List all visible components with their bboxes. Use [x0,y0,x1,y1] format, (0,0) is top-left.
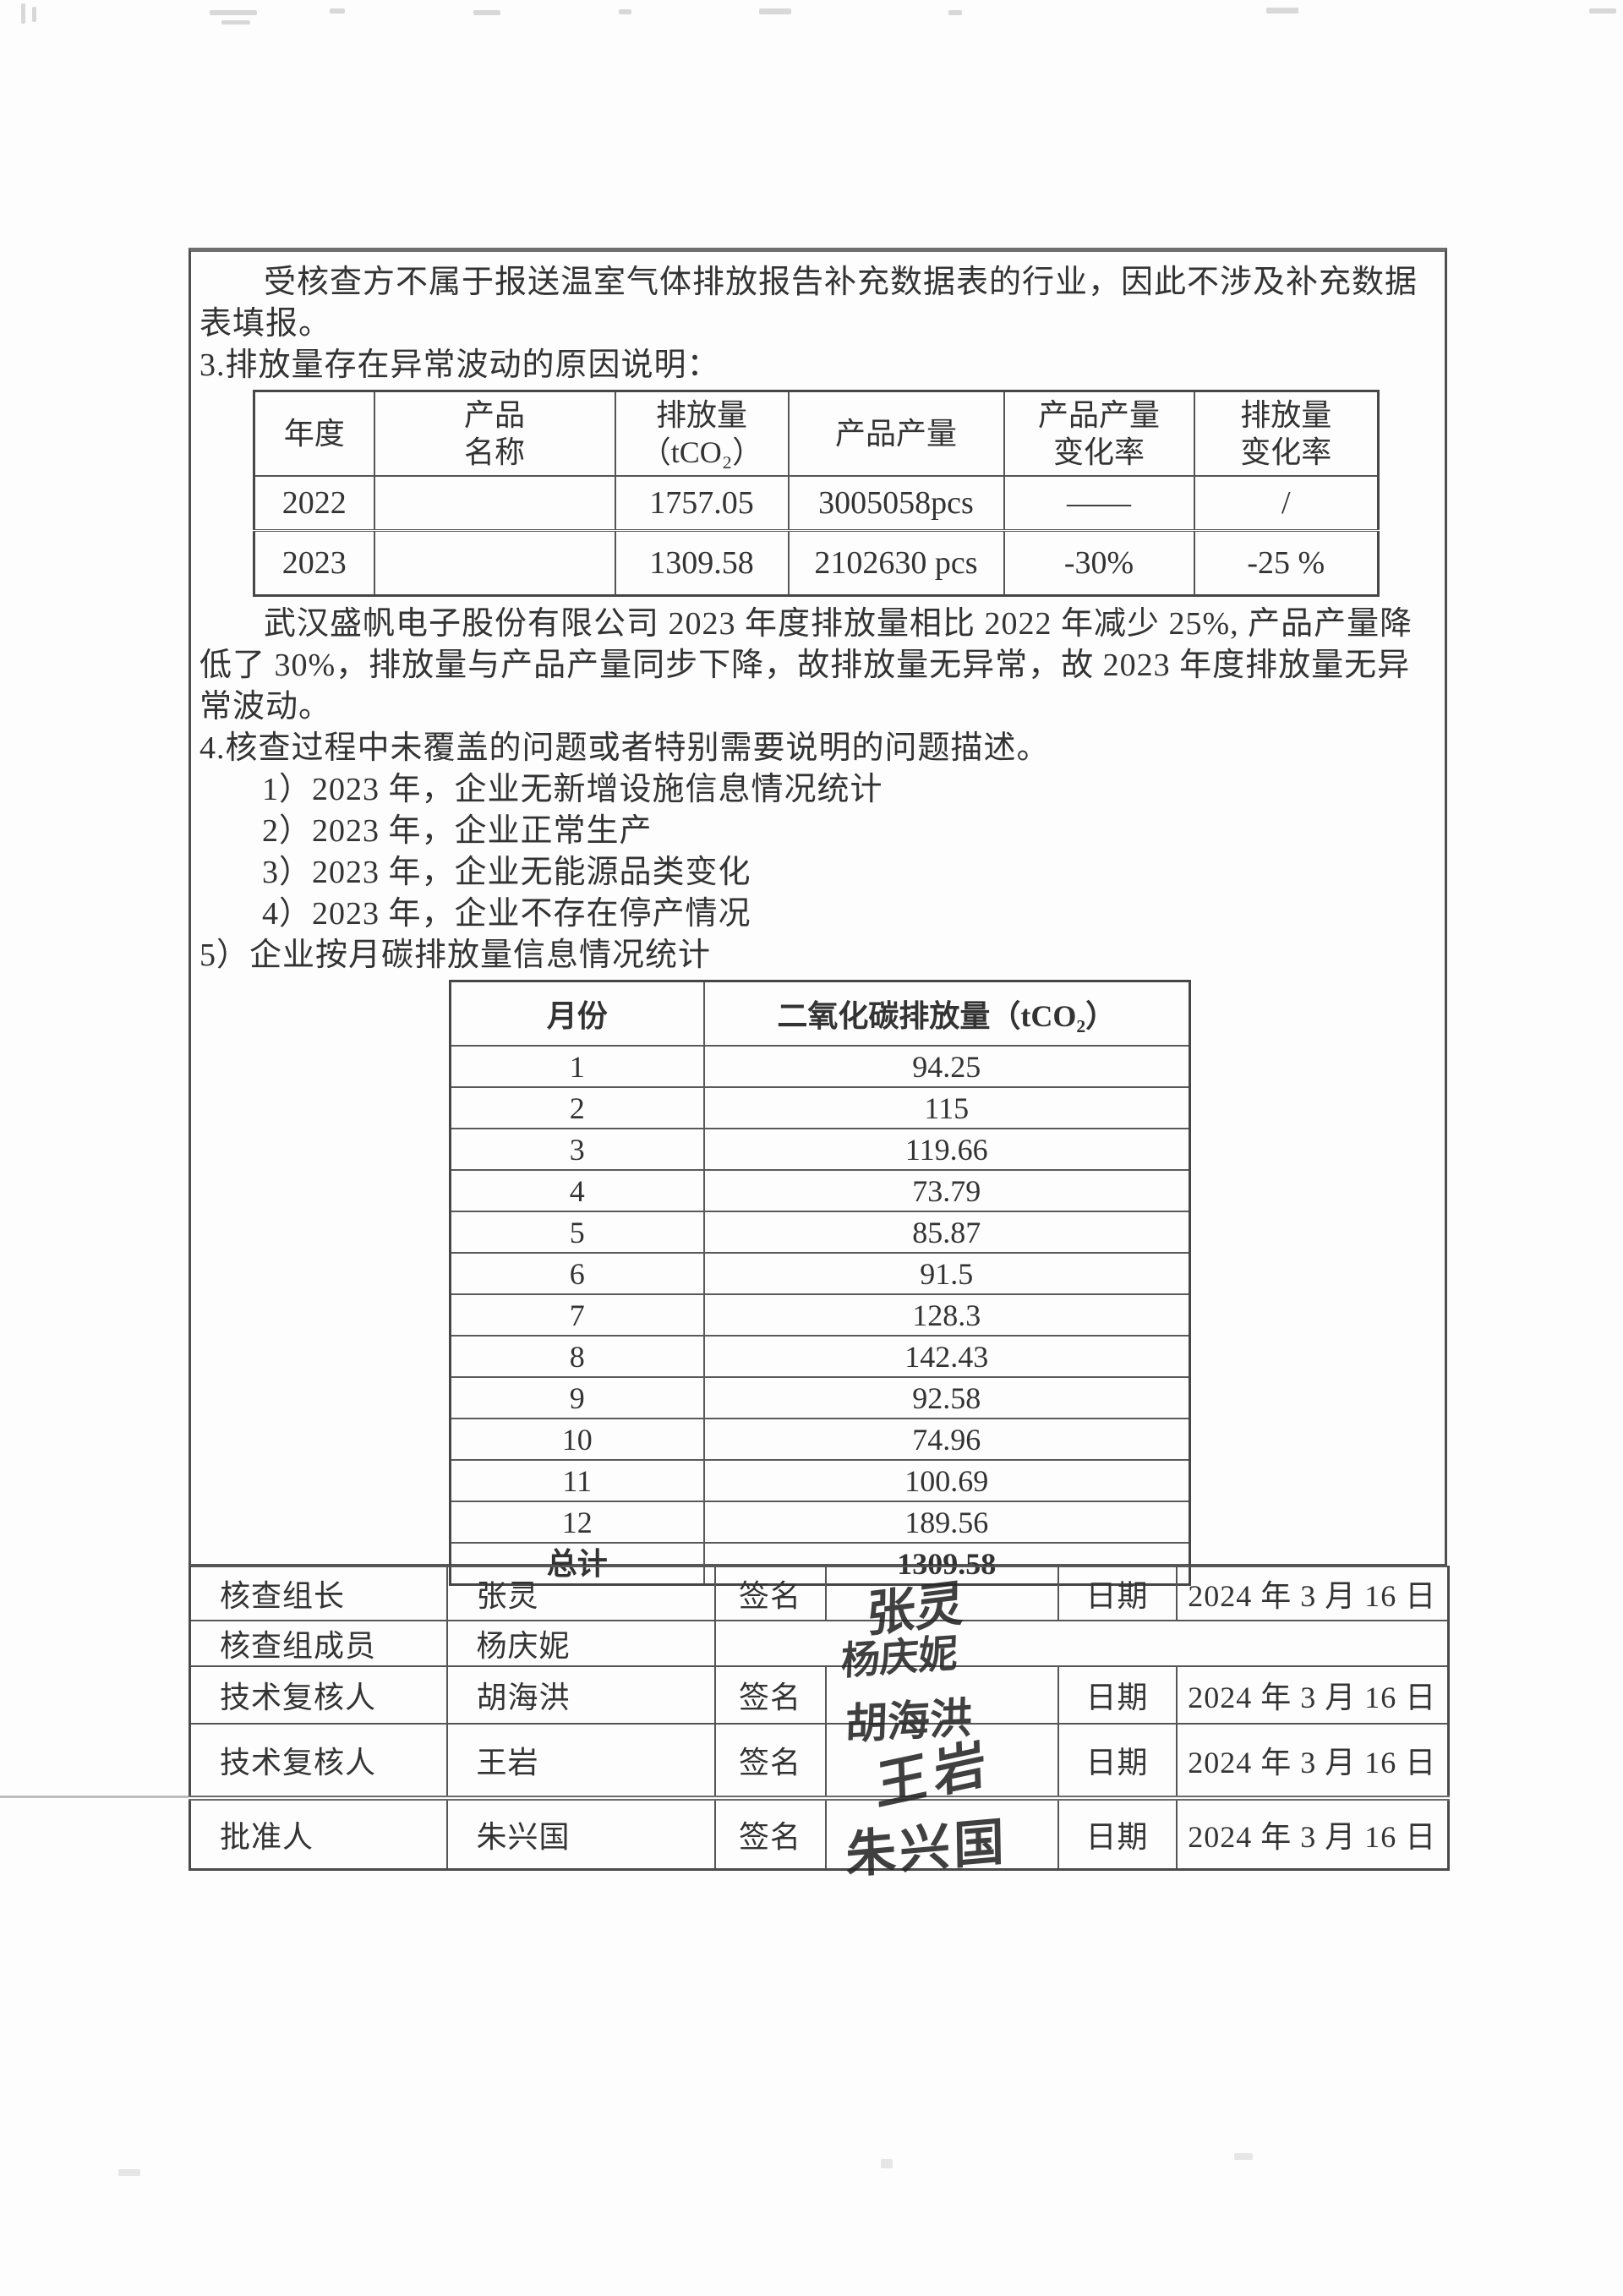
monthly-section-heading: 5）企业按月碳排放量信息情况统计 [199,935,1423,976]
date-label: 日期 [1058,1666,1177,1724]
signoff-row-tech-reviewer-1: 技术复核人 胡海洪 签名 日期 2024 年 3 月 16 日 [190,1666,1449,1724]
signoff-name: 朱兴国 [447,1798,715,1870]
signoff-role: 批准人 [190,1798,447,1870]
signoff-role: 技术复核人 [190,1666,447,1724]
table-row: 12189.56 [451,1501,1190,1543]
cell-product [374,476,615,531]
table-row: 473.79 [451,1170,1190,1211]
cell-output-change: —— [1004,476,1194,531]
col-header-year: 年度 [254,391,374,476]
scanned-report-page: { "intro": { "paragraph": "受核查方不属于报送温室气体… [0,0,1623,2296]
signoff-name: 胡海洪 [447,1666,715,1724]
signoff-name: 王岩 [447,1724,715,1798]
signoff-date: 2024 年 3 月 16 日 [1177,1798,1449,1870]
table-row: 2115 [451,1087,1190,1129]
col-header-output: 产品产量 [789,391,1004,476]
report-body-box: 受核查方不属于报送温室气体排放报告补充数据表的行业，因此不涉及补充数据表填报。 … [189,248,1447,1566]
scan-line-artifact [0,1796,189,1798]
scan-speck [1234,2153,1253,2160]
table-row: 1074.96 [451,1419,1190,1460]
monthly-header-row: 月份 二氧化碳排放量（tCO₂） [451,981,1190,1047]
date-label: 日期 [1058,1566,1177,1621]
scan-speck [1589,8,1616,14]
col-header-output-change: 产品产量 变化率 [1004,391,1194,476]
section4-heading: 4.核查过程中未覆盖的问题或者特别需要说明的问题描述。 [199,728,1423,769]
scan-speck [881,2159,893,2168]
list-item: 4）2023 年，企业不存在停产情况 [262,894,1423,935]
table-row: 2023 1309.58 2102630 pcs -30% -25 % [254,531,1379,596]
scan-speck [330,8,345,14]
scan-speck [473,10,500,15]
table-row: 194.25 [451,1046,1190,1087]
sign-label: 签名 [715,1566,826,1621]
signoff-date: 2024 年 3 月 16 日 [1177,1566,1449,1621]
signoff-row-team-member: 核查组成员 杨庆妮 [190,1621,1449,1666]
col-header-month: 月份 [451,981,704,1047]
monthly-emission-table: 月份 二氧化碳排放量（tCO₂） 194.25 2115 3119.66 473… [449,980,1191,1586]
cell-year: 2022 [254,476,374,531]
intro-paragraph: 受核查方不属于报送温室气体排放报告补充数据表的行业，因此不涉及补充数据表填报。 [199,262,1423,345]
col-header-emission-change: 排放量 变化率 [1194,391,1379,476]
list-item: 3）2023 年，企业无能源品类变化 [262,852,1423,894]
sign-label: 签名 [715,1724,826,1798]
scan-speck [118,2169,140,2176]
scan-speck [759,8,791,14]
table-row: 11100.69 [451,1460,1190,1501]
col-header-co2: 二氧化碳排放量（tCO₂） [704,981,1190,1047]
emission-comparison-table: 年度 产品 名称 排放量 （tCO₂） 产品产量 产品产量 变化率 排放量 变化… [253,390,1380,597]
signoff-name: 杨庆妮 [447,1621,715,1666]
scan-speck [619,9,631,14]
signoff-row-tech-reviewer-2: 技术复核人 王岩 签名 日期 2024 年 3 月 16 日 [190,1724,1449,1798]
section3-heading: 3.排放量存在异常波动的原因说明： [199,345,1423,386]
cell-output: 3005058pcs [789,476,1004,531]
signoff-table: 核查组长 张灵 签名 日期 2024 年 3 月 16 日 核查组成员 杨庆妮 … [189,1566,1450,1871]
analysis-paragraph: 武汉盛帆电子股份有限公司 2023 年度排放量相比 2022 年减少 25%, … [199,604,1423,728]
cell-output: 2102630 pcs [789,531,1004,596]
table-row: 2022 1757.05 3005058pcs —— / [254,476,1379,531]
date-label: 日期 [1058,1724,1177,1798]
cell-year: 2023 [254,531,374,596]
signature-area [826,1666,1058,1724]
date-label: 日期 [1058,1798,1177,1870]
cell-emission-change: -25 % [1194,531,1379,596]
col-header-product-name: 产品 名称 [374,391,615,476]
scan-speck [32,7,36,22]
signature-area [826,1566,1058,1621]
table-row: 992.58 [451,1377,1190,1419]
cell-product [374,531,615,596]
signoff-role: 技术复核人 [190,1724,447,1798]
list-item: 2）2023 年，企业正常生产 [262,811,1423,852]
table-row: 3119.66 [451,1129,1190,1170]
signoff-row-approver: 批准人 朱兴国 签名 日期 2024 年 3 月 16 日 [190,1798,1449,1870]
signoff-name: 张灵 [447,1566,715,1621]
col-header-emission: 排放量 （tCO₂） [615,391,789,476]
scan-speck [948,10,962,15]
signoff-role: 核查组长 [190,1566,447,1621]
signoff-date: 2024 年 3 月 16 日 [1177,1724,1449,1798]
comparison-header-row: 年度 产品 名称 排放量 （tCO₂） 产品产量 产品产量 变化率 排放量 变化… [254,391,1379,476]
table-row: 691.5 [451,1253,1190,1294]
signoff-date: 2024 年 3 月 16 日 [1177,1666,1449,1724]
sign-label: 签名 [715,1798,826,1870]
cell-emission: 1757.05 [615,476,789,531]
signoff-role: 核查组成员 [190,1621,447,1666]
signature-area [826,1724,1058,1798]
scan-speck [21,3,25,24]
scan-speck [221,20,250,25]
sign-label: 签名 [715,1666,826,1724]
signoff-row-team-leader: 核查组长 张灵 签名 日期 2024 年 3 月 16 日 [190,1566,1449,1621]
finding-list: 1）2023 年，企业无新增设施信息情况统计 2）2023 年，企业正常生产 3… [199,769,1423,935]
table-row: 8142.43 [451,1336,1190,1377]
cell-output-change: -30% [1004,531,1194,596]
cell-emission: 1309.58 [615,531,789,596]
signature-area [715,1621,1449,1666]
list-item: 1）2023 年，企业无新增设施信息情况统计 [262,769,1423,811]
scan-speck [1266,8,1298,14]
scan-speck [210,10,257,15]
table-row: 585.87 [451,1211,1190,1253]
cell-emission-change: / [1194,476,1379,531]
table-row: 7128.3 [451,1294,1190,1336]
signature-area [826,1798,1058,1870]
